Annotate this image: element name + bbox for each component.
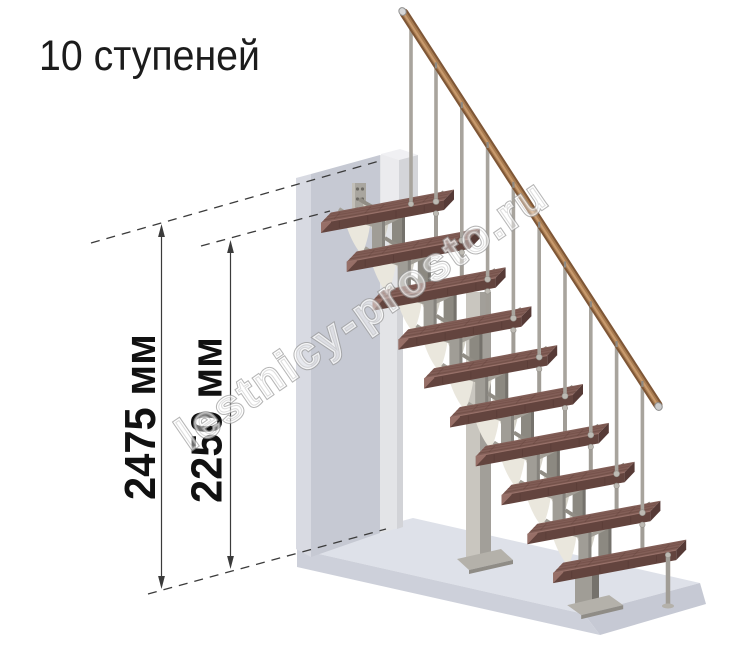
svg-text:10 ступеней: 10 ступеней bbox=[39, 32, 260, 80]
svg-text:2475 мм: 2475 мм bbox=[116, 334, 165, 500]
